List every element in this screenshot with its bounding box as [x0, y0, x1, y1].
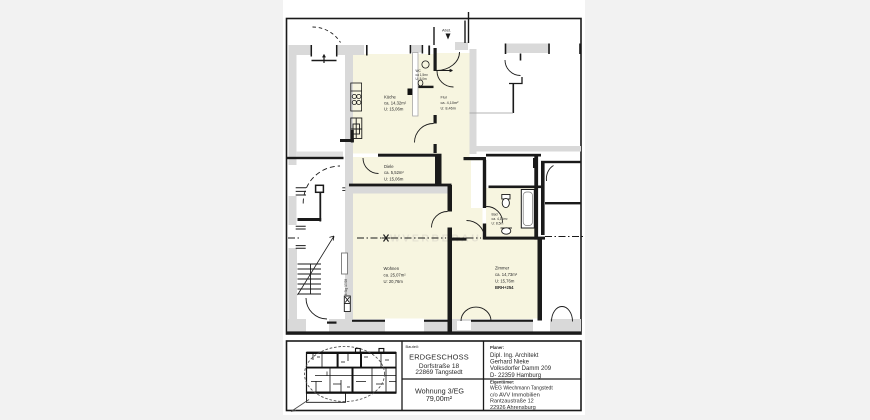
svg-text:c/o AVV Immobilien: c/o AVV Immobilien — [490, 392, 540, 398]
svg-text:ca. 5,52m²: ca. 5,52m² — [384, 170, 404, 175]
svg-text:BRH+254: BRH+254 — [495, 285, 514, 290]
svg-text:Diele: Diele — [384, 164, 394, 169]
svg-text:D- 22359 Hamburg: D- 22359 Hamburg — [490, 373, 541, 379]
svg-text:U: 15,06m: U: 15,06m — [384, 177, 404, 182]
svg-text:Dipl. Ing. Architekt: Dipl. Ing. Architekt — [490, 353, 539, 359]
svg-text:16 Stg 17/28: 16 Stg 17/28 — [344, 279, 348, 297]
svg-text:Rantzaustraße 12: Rantzaustraße 12 — [490, 399, 534, 405]
svg-text:22869 Tangstedt: 22869 Tangstedt — [415, 369, 462, 376]
svg-text:Wohnen: Wohnen — [384, 266, 400, 271]
svg-text:ca. 25,07m²: ca. 25,07m² — [384, 273, 407, 278]
svg-text:WEG Wiechmann Tangstedt: WEG Wiechmann Tangstedt — [490, 385, 553, 391]
svg-text:ca. 4,16m²: ca. 4,16m² — [492, 217, 509, 221]
svg-text:Gerhard Nieke: Gerhard Nieke — [490, 360, 530, 366]
svg-text:22926 Ahrensburg: 22926 Ahrensburg — [490, 405, 536, 411]
svg-text:ca. 14,32m²: ca. 14,32m² — [384, 101, 407, 106]
svg-text:Zimmer: Zimmer — [495, 266, 510, 271]
svg-text:ca. 14,73m²: ca. 14,73m² — [495, 272, 518, 277]
svg-text:Planer:: Planer: — [490, 345, 504, 350]
svg-text:U: 20,76m: U: 20,76m — [384, 279, 404, 284]
svg-text:Küche: Küche — [384, 95, 397, 100]
svg-text:U: 8,5m: U: 8,5m — [492, 222, 504, 226]
svg-text:U: 8,46m: U: 8,46m — [441, 107, 456, 111]
svg-text:U: 15,76m: U: 15,76m — [495, 279, 515, 284]
svg-text:U: 15,06m: U: 15,06m — [384, 107, 404, 112]
svg-text:Bauteil:: Bauteil: — [406, 344, 419, 349]
svg-text:Abst.: Abst. — [442, 28, 451, 33]
svg-text:Flur: Flur — [441, 96, 448, 100]
svg-text:U: 5,0m: U: 5,0m — [416, 77, 428, 81]
svg-text:Eigentümer:: Eigentümer: — [490, 380, 514, 385]
svg-text:ca. 4,10m²: ca. 4,10m² — [441, 101, 460, 105]
svg-text:WVERBERAU: WVERBERAU — [390, 233, 481, 245]
svg-text:ERDGESCHOSS: ERDGESCHOSS — [409, 353, 469, 362]
svg-text:Bad: Bad — [492, 213, 498, 217]
svg-text:79,00m²: 79,00m² — [426, 394, 453, 403]
svg-text:Volksdorfer Damm 209: Volksdorfer Damm 209 — [490, 366, 552, 372]
